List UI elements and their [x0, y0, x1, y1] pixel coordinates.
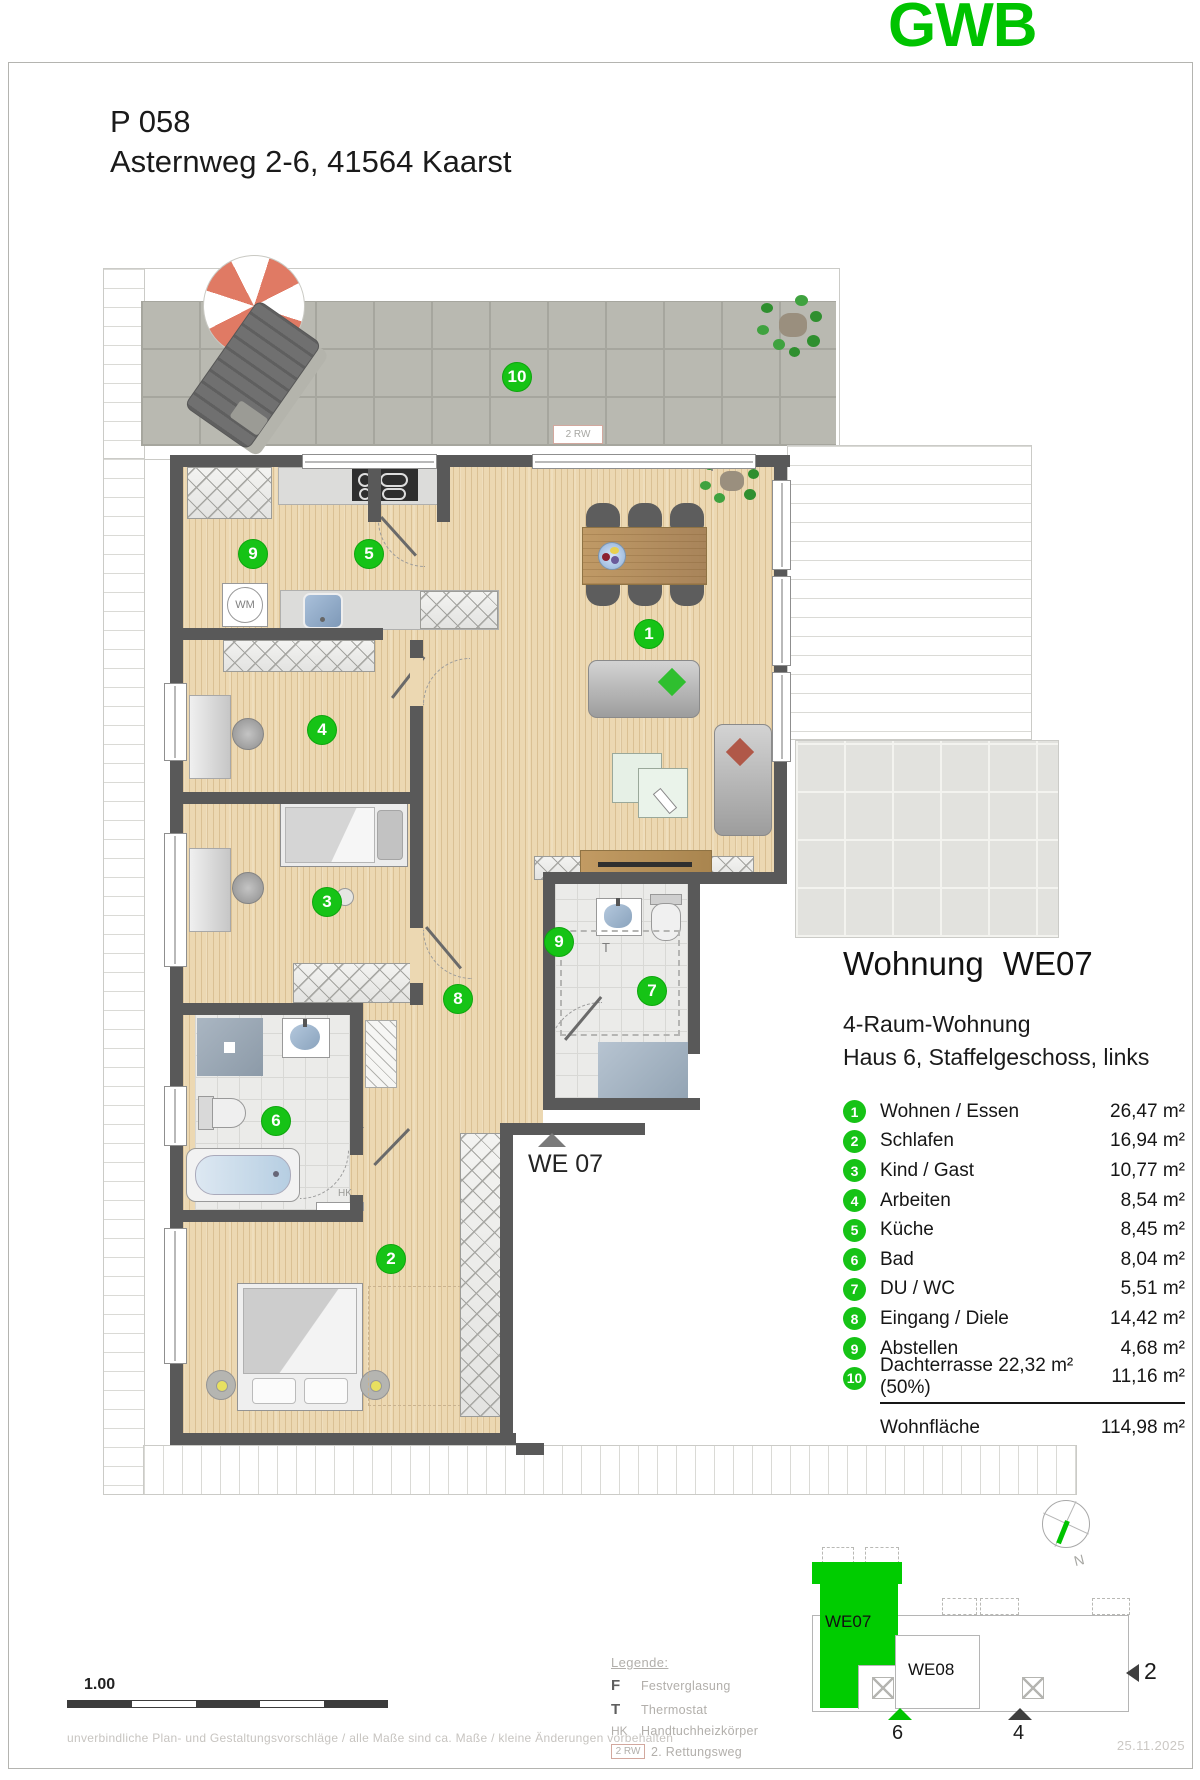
room4-closet	[223, 640, 375, 672]
plan-date: 25.11.2025	[1083, 1738, 1185, 1753]
compass	[1042, 1500, 1090, 1548]
room3-closet	[293, 963, 411, 1003]
wall	[183, 1210, 363, 1222]
legend-key-t: T	[611, 1701, 641, 1718]
bathtub	[186, 1148, 300, 1202]
entrance-arrow-icon	[538, 1133, 566, 1147]
room-area: 8,04 m²	[1121, 1249, 1185, 1271]
wall	[543, 884, 555, 1110]
nightstand-left	[206, 1370, 236, 1400]
neighbor-roof-right	[787, 445, 1032, 740]
kitchen-sink	[303, 593, 343, 629]
window	[164, 683, 187, 761]
room-area: 14,42 m²	[1110, 1308, 1185, 1330]
storage-closet	[187, 467, 272, 519]
neighbor-terrace-tiles	[795, 740, 1059, 938]
roof-edge-left	[103, 458, 145, 1495]
room-marker-10: 10	[502, 362, 532, 392]
window	[772, 576, 791, 666]
legend-label-t: Thermostat	[641, 1703, 707, 1717]
tv-bar	[598, 862, 692, 867]
window	[532, 454, 756, 469]
wall	[688, 884, 700, 1054]
room-list-row: 8 Eingang / Diele 14,42 m²	[843, 1304, 1185, 1334]
room-marker-9: 9	[238, 539, 268, 569]
side-2-icon	[1126, 1664, 1139, 1682]
room-list-row: 3 Kind / Gast 10,77 m²	[843, 1156, 1185, 1186]
total-area-value: 114,98 m²	[1101, 1417, 1185, 1439]
desk-room3	[189, 848, 231, 932]
toilet-bath-bowl	[212, 1098, 246, 1128]
room-area: 10,77 m²	[1110, 1160, 1185, 1182]
apartment-location: Haus 6, Staffelgeschoss, links	[843, 1044, 1185, 1071]
room-list-row: 5 Küche 8,45 m²	[843, 1215, 1185, 1245]
legend-title: Legende:	[611, 1655, 811, 1670]
kitchen-cabinet	[420, 591, 498, 629]
room-number-badge: 2	[843, 1130, 866, 1153]
disclaimer-text: unverbindliche Plan- und Gestaltungsvors…	[67, 1731, 673, 1745]
room-number-badge: 10	[843, 1367, 866, 1390]
terrace-plant	[755, 295, 825, 361]
wardrobe	[460, 1133, 502, 1417]
room-area: 16,94 m²	[1110, 1130, 1185, 1152]
wall	[543, 1098, 700, 1110]
legend-key-rw: 2 RW	[611, 1744, 645, 1759]
keyplan-roof-box	[942, 1598, 977, 1615]
cooktop	[352, 469, 418, 501]
room-list-row: 7 DU / WC 5,51 m²	[843, 1275, 1185, 1305]
dining-chair	[628, 503, 662, 529]
window	[164, 833, 187, 967]
room-list: 1 Wohnen / Essen 26,47 m² 2 Schlafen 16,…	[843, 1097, 1185, 1393]
wall	[437, 467, 450, 522]
room-number-badge: 3	[843, 1159, 866, 1182]
unit-entrance-label: WE 07	[528, 1150, 603, 1179]
entrance-6-icon	[888, 1708, 912, 1720]
room-list-row: 1 Wohnen / Essen 26,47 m²	[843, 1097, 1185, 1127]
room-area: 8,54 m²	[1121, 1190, 1185, 1212]
wall	[183, 1003, 363, 1015]
entrance-4-icon	[1008, 1708, 1032, 1720]
keyplan-we08-label: WE08	[908, 1660, 954, 1680]
room-number-badge: 4	[843, 1189, 866, 1212]
room-number-badge: 5	[843, 1219, 866, 1242]
washing-machine-label: WM	[227, 587, 263, 623]
wall	[368, 467, 381, 522]
wall	[183, 628, 383, 640]
room-area: 8,45 m²	[1121, 1219, 1185, 1241]
room-marker-2: 2	[376, 1244, 406, 1274]
room-marker-8: 8	[443, 984, 473, 1014]
room-area: 11,16 m²	[1111, 1366, 1185, 1388]
washing-machine: WM	[222, 583, 268, 627]
wall	[500, 1123, 513, 1433]
room-label: Küche	[880, 1219, 934, 1241]
wall	[350, 1015, 363, 1155]
room-label: Schlafen	[880, 1130, 954, 1152]
shower-bath	[197, 1018, 263, 1076]
room-marker-4: 4	[307, 715, 337, 745]
scale-label: 1.00	[84, 1676, 115, 1694]
keyplan-unit-we07-cap	[812, 1562, 902, 1584]
bath-sink	[282, 1018, 330, 1058]
room-marker-6: 6	[261, 1106, 291, 1136]
door-opening	[410, 928, 423, 983]
room-label: Arbeiten	[880, 1190, 951, 1212]
wall	[500, 1123, 645, 1135]
room-list-row-terrace: 10 Dachterrasse 22,32 m² (50%) 11,16 m²	[843, 1363, 1185, 1393]
dining-chair	[670, 503, 704, 529]
escape-route-tag: 2 RW	[553, 425, 603, 444]
room-number-badge: 1	[843, 1100, 866, 1123]
window	[772, 480, 791, 570]
apartment-info-panel: Wohnung WE07 4-Raum-Wohnung Haus 6, Staf…	[843, 945, 1185, 1443]
dining-chair	[586, 503, 620, 529]
room-label: Kind / Gast	[880, 1160, 974, 1182]
sofa-large	[588, 660, 700, 718]
fruit-bowl	[598, 542, 626, 570]
legend-row: T Thermostat	[611, 1701, 811, 1718]
room-number-badge: 9	[843, 1337, 866, 1360]
wall	[170, 1433, 516, 1445]
room-label: Eingang / Diele	[880, 1308, 1009, 1330]
entrance-4-label: 4	[1013, 1722, 1024, 1745]
wall	[516, 1443, 544, 1455]
legend-key-f: F	[611, 1677, 641, 1694]
legend-row: F Festverglasung	[611, 1677, 811, 1694]
room-number-badge: 6	[843, 1248, 866, 1271]
scale-bar	[67, 1700, 388, 1708]
desk-room4	[189, 695, 231, 779]
duwc-shower-floor	[598, 1042, 688, 1098]
chair-room3	[232, 872, 264, 904]
keyplan-stair-box	[1022, 1677, 1044, 1699]
hall-shaft	[365, 1020, 397, 1088]
window	[164, 1228, 187, 1364]
double-bed	[237, 1283, 363, 1411]
keyplan-we07-label: WE07	[825, 1612, 871, 1632]
room-number-badge: 8	[843, 1307, 866, 1330]
thermostat-label-duwc: T	[602, 940, 610, 955]
room-number-badge: 7	[843, 1278, 866, 1301]
room-list-row: 4 Arbeiten 8,54 m²	[843, 1186, 1185, 1216]
wall	[183, 792, 413, 804]
window	[772, 672, 791, 762]
entrance-6-label: 6	[892, 1722, 903, 1745]
wall	[543, 872, 787, 884]
roof-edge-left-terrace	[103, 268, 145, 460]
room-area: 26,47 m²	[1110, 1101, 1185, 1123]
room-list-row: 6 Bad 8,04 m²	[843, 1245, 1185, 1275]
bed-room3	[280, 803, 408, 867]
window	[164, 1086, 187, 1146]
window	[302, 454, 437, 469]
keyplan-roof-box	[980, 1598, 1019, 1615]
room-label: Wohnen / Essen	[880, 1101, 1019, 1123]
room-marker-5: 5	[354, 539, 384, 569]
room-label: Dachterrasse 22,32 m² (50%)	[880, 1355, 1111, 1399]
room-label: Bad	[880, 1249, 914, 1271]
room-label: DU / WC	[880, 1278, 955, 1300]
total-area-row: Wohnfläche 114,98 m²	[843, 1413, 1185, 1443]
room-area: 5,51 m²	[1121, 1278, 1185, 1300]
key-plan: WE07 WE08 N 6 4 2	[790, 1480, 1200, 1780]
legend-row: 2 RW 2. Rettungsweg	[611, 1744, 811, 1759]
door-opening	[410, 658, 423, 706]
legend-label-rw: 2. Rettungsweg	[651, 1745, 742, 1759]
keyplan-roof-box	[1092, 1598, 1130, 1615]
room-list-row: 2 Schlafen 16,94 m²	[843, 1127, 1185, 1157]
total-area-label: Wohnfläche	[880, 1417, 980, 1439]
apartment-type: 4-Raum-Wohnung	[843, 1011, 1185, 1038]
room-marker-1: 1	[634, 619, 664, 649]
keyplan-stair-box	[872, 1677, 894, 1699]
chair-room4	[232, 718, 264, 750]
room-marker-3: 3	[312, 887, 342, 917]
compass-north-label: N	[1072, 1551, 1086, 1569]
side-2-label: 2	[1144, 1658, 1157, 1685]
room-marker-7: 7	[637, 976, 667, 1006]
room-marker-9b: 9	[544, 927, 574, 957]
apartment-title: Wohnung WE07	[843, 945, 1185, 983]
legend-label-f: Festverglasung	[641, 1679, 731, 1693]
